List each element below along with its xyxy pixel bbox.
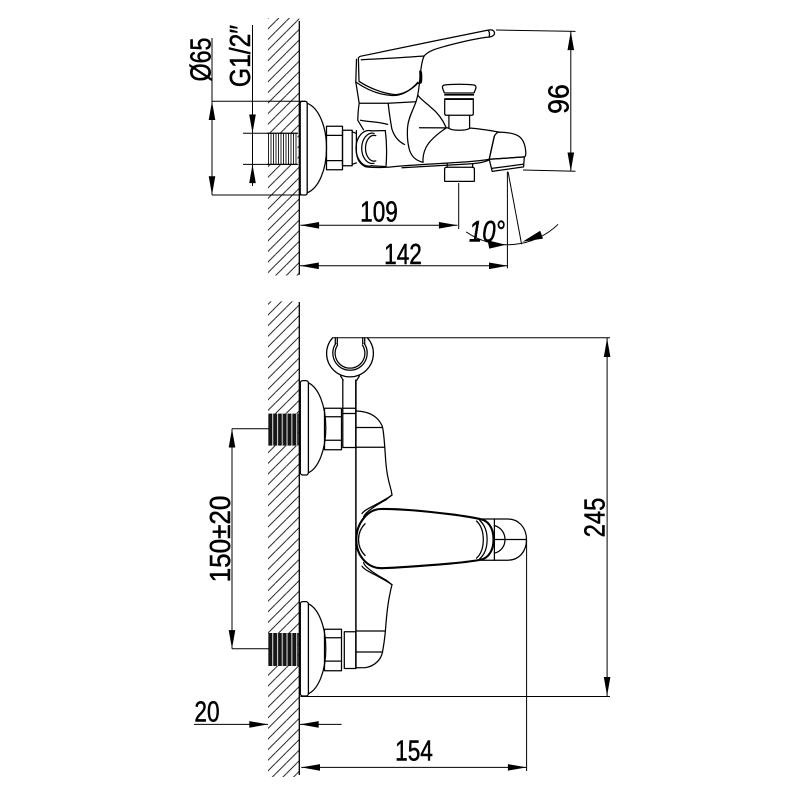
svg-text:Ø65: Ø65 xyxy=(184,38,217,82)
svg-text:245: 245 xyxy=(578,498,611,538)
svg-text:10°: 10° xyxy=(469,214,505,248)
svg-text:G1/2″: G1/2″ xyxy=(224,24,256,87)
svg-text:20: 20 xyxy=(194,695,219,728)
svg-text:154: 154 xyxy=(395,734,433,767)
svg-text:109: 109 xyxy=(360,195,398,228)
svg-text:96: 96 xyxy=(542,84,574,114)
svg-text:142: 142 xyxy=(384,237,422,270)
svg-text:150±20: 150±20 xyxy=(204,496,237,583)
